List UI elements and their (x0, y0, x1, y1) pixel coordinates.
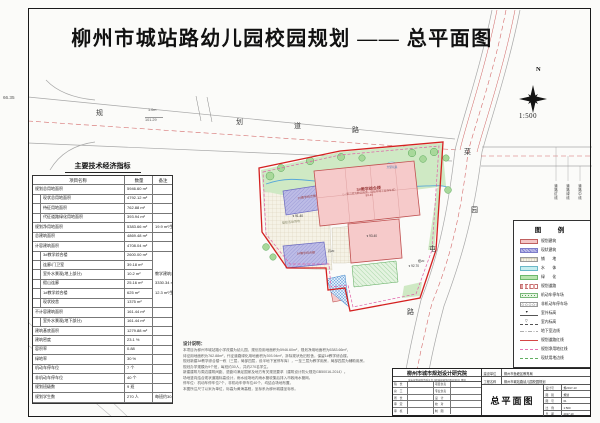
staff-grid: 院 长 项目负责 总 工 专业负责 所 长 设 计 (393, 382, 481, 415)
legend-swatch-icon (520, 293, 538, 298)
staff-role: 审 核 (393, 408, 408, 415)
row-item-name: 室外水景观(地上部分) (33, 270, 125, 279)
legend-item: 非机动车停车场 (520, 300, 590, 309)
legend-item: 现状用地边线 (520, 354, 590, 363)
legend-swatch-icon (520, 338, 538, 343)
row-item-name: 总建筑面积 (33, 233, 125, 242)
row-quantity: 625 m² (125, 289, 153, 298)
row-item-name: 3#教学综合楼 (33, 252, 125, 261)
row-quantity: 1375 m² (125, 299, 153, 308)
staff-row: 总 工 专业负责 (393, 388, 481, 395)
legend-swatch-icon (520, 239, 538, 244)
row-remark (153, 185, 172, 194)
legend-panel: 图 例 规划建筑 现状建筑 铺 地 水 体 (513, 220, 591, 368)
row-item-name: 假山连廊 (33, 280, 125, 289)
row-quantity: 4708.04 m² (125, 242, 153, 251)
indicator-table-title: 主要技术经济指标 (65, 161, 141, 173)
table-row: 规划净用地面积 5383.66 m² 19.9 m²/生 (33, 223, 172, 232)
row-item-name: 规划总用地面积 (33, 185, 125, 194)
tree-tag: 樟20 (418, 259, 424, 263)
meta-key: 比 例 (544, 404, 562, 409)
legend-item-label: 绿 化 (541, 275, 556, 280)
pool-label: 大型玩具 (386, 166, 398, 169)
project-row: 工程名称 柳州市城站路幼儿园校园规划 (482, 377, 590, 385)
row-item-name: 绿地率 (33, 355, 125, 364)
staff-signature (408, 401, 434, 408)
table-row: 室外水景观(地下部分) 161.44 m² (33, 318, 172, 327)
legend-swatch-icon (520, 284, 538, 289)
legend-item: 铺 地 (520, 255, 590, 264)
table-row: 1#教学综合楼 625 m² 12.3 m²/生 (33, 289, 172, 298)
header-item-name: 项目名称 (33, 176, 125, 185)
row-item-name: 代征道路绿化用地面积 (33, 214, 125, 223)
page-title: 柳州市城站路幼儿园校园规划 —— 总平面图 (58, 22, 506, 51)
staff-signature (451, 401, 481, 408)
row-remark (153, 355, 172, 364)
legend-item: 室外标高 (520, 309, 590, 318)
legend-swatch-icon (520, 311, 538, 316)
design-note-line: 本图所注尺寸以米为单位，标高为黄海高程，坐标系为柳州城建坐标系。 (183, 387, 427, 393)
staff-role: 专业负责 (434, 388, 451, 395)
legend-items: 规划建筑 现状建筑 铺 地 水 体 绿 化 (520, 237, 590, 364)
spot-elevation: 93.40 (366, 234, 377, 238)
row-remark (153, 308, 172, 317)
legend-item: 规划建筑 (520, 237, 590, 246)
meta-value: 1:500 (562, 404, 590, 409)
tree-tag: 丹20 (328, 249, 334, 253)
north-arrow-icon (519, 85, 547, 113)
staff-signature (408, 395, 434, 402)
meta-key: 图 号 (544, 398, 562, 403)
staff-row: 院 长 项目负责 (393, 382, 481, 389)
staff-signature (408, 388, 434, 395)
row-quantity: 1279.88 m² (125, 327, 153, 336)
meta-value: 01 (562, 398, 590, 403)
table-row: 规划学生数 270 人 每班约30人 (33, 393, 172, 402)
row-remark (153, 365, 172, 374)
institute-name: 柳州市城市规划设计研究院 (393, 369, 481, 377)
title-block: 柳州市城市规划设计研究院 城市规划编制资质证书 [建]城规编第(081036)号… (392, 368, 591, 416)
row-remark (153, 299, 172, 308)
row-quantity: 0.88 (125, 346, 153, 355)
table-row: 规划班级数 9 班 (33, 384, 172, 393)
label-road-greenline: 道路绿线 (565, 184, 568, 200)
legend-item-label: 室内标高 (541, 320, 556, 325)
legend-item-label: 铺 地 (541, 257, 556, 262)
owner-label: 建设单位 (482, 369, 502, 376)
staff-role: 总 工 (393, 388, 408, 395)
row-item-name: 规划班级数 (33, 384, 125, 393)
row-quantity: 30 % (125, 355, 153, 364)
staff-signature (451, 408, 481, 415)
row-remark: 19.9 m²/生 (153, 223, 172, 232)
meta-row: 日 期 2017.10 (544, 411, 590, 416)
drawing-title: 总平面图 (482, 385, 544, 416)
row-quantity: 161.44 m² (125, 308, 153, 317)
legend-swatch-icon (520, 302, 538, 307)
row-quantity: 393.94 m² (125, 214, 153, 223)
row-item-name: 现状总用地面积 (33, 195, 125, 204)
project-label: 工程名称 (482, 377, 502, 384)
legend-item: 机动车停车场 (520, 291, 590, 300)
row-quantity: 2600.00 m² (125, 252, 153, 261)
staff-signature (451, 395, 481, 402)
indicator-table: 主要技术经济指标 项目名称 数量 备注 规划总用地面积 5946.60 m² 现… (32, 161, 173, 404)
row-remark (153, 374, 172, 383)
row-quantity: 4792.12 m² (125, 195, 153, 204)
road-char: 路 (407, 309, 414, 316)
table-row: 不计容建筑面积 161.44 m² (33, 308, 172, 317)
indicator-header-row: 项目名称 数量 备注 (33, 176, 172, 185)
row-quantity: 4869.48 m² (125, 233, 153, 242)
table-row: 3#教学综合楼 2600.00 m² (33, 252, 172, 261)
dim-road-width: 1.0m (148, 108, 156, 112)
staff-role: 设 计 (434, 395, 451, 402)
row-remark (153, 346, 172, 355)
row-quantity: 10.2 m² (125, 270, 153, 279)
staff-role: 项目负责 (434, 382, 451, 389)
spot-elevation: 91.40 (292, 214, 303, 218)
table-row: 现状总用地面积 4792.12 m² (33, 195, 172, 204)
row-quantity: 40 个 (125, 374, 153, 383)
label-road-centerline: 道路中线 (577, 184, 580, 200)
row-remark (153, 384, 172, 393)
legend-item-label: 地下室边线 (541, 329, 560, 334)
row-item-name: 计容建筑面积 (33, 242, 125, 251)
legend-item-label: 室外标高 (541, 311, 556, 316)
scale-label: 1:500 (519, 113, 537, 120)
row-quantity: 5383.66 m² (125, 223, 153, 232)
row-remark: 每班约30人 (153, 393, 172, 402)
row-quantity: 25.16 m² (125, 280, 153, 289)
drawing-meta: 设计号 规2017-13 图 别 规划 图 号 01 比 例 (544, 385, 590, 416)
row-item-name: 不计容建筑面积 (33, 308, 125, 317)
legend-swatch-icon (520, 329, 538, 334)
staff-row: 审 定 校 对 (393, 401, 481, 408)
row-remark (153, 318, 172, 327)
table-row: 规划总用地面积 5946.60 m² (33, 185, 172, 194)
legend-swatch-icon (520, 248, 538, 253)
legend-item: 规划道路红线 (520, 336, 590, 345)
legend-swatch-icon (520, 257, 538, 262)
legend-item: 地下室边线 (520, 327, 590, 336)
row-item-name: 规划净用地面积 (33, 223, 125, 232)
project-value: 柳州市城站路幼儿园校园规划 (502, 377, 590, 384)
legend-item-label: 规划道路红线 (541, 338, 564, 343)
row-item-name: 连廊/门卫室 (33, 261, 125, 270)
design-notes-heading: 设计说明： (183, 341, 427, 347)
staff-row: 所 长 设 计 (393, 395, 481, 402)
legend-swatch-icon (520, 356, 538, 361)
indicator-rows: 规划总用地面积 5946.60 m² 现状总用地面积 4792.12 m² 待征… (33, 185, 172, 402)
row-remark (153, 261, 172, 270)
table-row: 建筑密度 23.1 % (33, 336, 172, 345)
road-char: 规 (96, 110, 103, 117)
staff-signature (451, 388, 481, 395)
row-quantity: 270 人 (125, 393, 153, 402)
row-quantity: 5946.60 m² (125, 185, 153, 194)
table-row: 现状校舍 1375 m² (33, 299, 172, 308)
row-remark (153, 252, 172, 261)
legend-item-label: 现状建筑 (541, 248, 556, 253)
legend-item-label: 机动车停车场 (541, 293, 564, 298)
header-quantity: 数量 (125, 176, 153, 185)
row-quantity: 7 个 (125, 365, 153, 374)
row-remark (153, 327, 172, 336)
staff-row: 审 核 制 图 (393, 408, 481, 415)
row-remark: 教学建筑总面积 (153, 270, 172, 279)
row-quantity: 23.1 % (125, 336, 153, 345)
legend-title: 图 例 (520, 224, 584, 234)
table-row: 室外水景观(地上部分) 10.2 m² 教学建筑总面积 (33, 270, 172, 279)
staff-signature (451, 382, 481, 389)
owner-value: 柳州市鱼峰区教育局 (502, 369, 590, 376)
legend-item-label: 非机动车停车场 (541, 302, 568, 307)
legend-swatch-icon (520, 347, 538, 352)
staff-signature (408, 382, 434, 389)
row-item-name: 容积率 (33, 346, 125, 355)
road-top-right (481, 147, 592, 181)
row-quantity: 9 班 (125, 384, 153, 393)
meta-value: 规划 (562, 391, 590, 396)
table-row: 连廊/门卫室 39.18 m² (33, 261, 172, 270)
row-item-name: 建筑基底面积 (33, 327, 125, 336)
road-char: 道 (294, 123, 301, 130)
row-remark (153, 195, 172, 204)
design-notes-lines: 本项目为柳州市城站路小学改建为幼儿园，规划总用地面积为5946.60m²，规划净… (183, 348, 427, 393)
legend-item: 规划道路 (520, 282, 590, 291)
row-item-name: 非机动车停车位 (33, 374, 125, 383)
road-char: 划 (236, 119, 243, 126)
row-item-name: 1#教学综合楼 (33, 289, 125, 298)
legend-item-label: 规划建筑 (541, 239, 556, 244)
road-char: 园 (471, 207, 478, 214)
staff-signature (408, 408, 434, 415)
spot-elevation: 92.70 (408, 264, 419, 268)
table-row: 代征道路绿化用地面积 393.94 m² (33, 214, 172, 223)
row-remark (153, 233, 172, 242)
row-item-name: 建筑密度 (33, 336, 125, 345)
dim-left: 66.35 (3, 95, 15, 100)
row-item-name: 规划学生数 (33, 393, 125, 402)
table-row: 容积率 0.88 (33, 346, 172, 355)
north-label: N (536, 66, 541, 73)
row-remark (153, 242, 172, 251)
table-row: 非机动车停车位 40 个 (33, 374, 172, 383)
meta-key: 日 期 (544, 411, 562, 416)
legend-swatch-icon (520, 266, 538, 271)
road-char: 路 (352, 127, 359, 134)
meta-key: 图 别 (544, 391, 562, 396)
row-item-name: 机动车停车位 (33, 365, 125, 374)
table-row: 待征用地面积 762.88 m² (33, 204, 172, 213)
legend-item-label: 规划净用地红线 (541, 347, 568, 352)
legend-item: 水 体 (520, 264, 590, 273)
green-pocket-southeast (402, 282, 422, 298)
legend-item: 绿 化 (520, 273, 590, 282)
staff-role: 校 对 (434, 401, 451, 408)
road-char: 屯 (429, 246, 436, 253)
staff-role: 制 图 (434, 408, 451, 415)
car-parking (352, 261, 398, 287)
row-item-name: 室外水景观(地下部分) (33, 318, 125, 327)
table-row: 机动车停车位 7 个 (33, 365, 172, 374)
meta-key: 设计号 (544, 385, 562, 390)
row-item-name: 待征用地面积 (33, 204, 125, 213)
row-remark (153, 336, 172, 345)
drawing-sheet: { "sheet": { "title": "柳州市城站路幼儿园校园规划 —— … (0, 0, 600, 423)
owner-row: 建设单位 柳州市鱼峰区教育局 (482, 369, 590, 377)
row-quantity: 762.88 m² (125, 204, 153, 213)
staff-role: 审 定 (393, 401, 408, 408)
legend-swatch-icon (520, 275, 538, 280)
row-remark: 3330.34 m² (153, 280, 172, 289)
legend-item: 规划净用地红线 (520, 345, 590, 354)
table-row: 计容建筑面积 4708.04 m² (33, 242, 172, 251)
legend-item-label: 水 体 (541, 266, 556, 271)
table-row: 假山连廊 25.16 m² 3330.34 m² (33, 280, 172, 289)
row-quantity: 39.18 m² (125, 261, 153, 270)
row-item-name: 现状校舍 (33, 299, 125, 308)
row-quantity: 161.44 m² (125, 318, 153, 327)
row-remark (153, 204, 172, 213)
staff-role: 院 长 (393, 382, 408, 389)
building-3-planned-wing (348, 219, 402, 263)
legend-swatch-icon (520, 320, 538, 325)
header-remark: 备注 (153, 176, 172, 185)
table-row: 总建筑面积 4869.48 m² (33, 233, 172, 242)
legend-item-label: 现状用地边线 (541, 356, 564, 361)
meta-value: 规2017-13 (562, 385, 590, 390)
table-row: 建筑基底面积 1279.88 m² (33, 327, 172, 336)
row-remark (153, 214, 172, 223)
dim-road-length: 101.29 (145, 118, 157, 122)
meta-value: 2017.10 (562, 411, 590, 416)
road-char: 菜 (464, 149, 471, 156)
title-block-left: 柳州市城市规划设计研究院 城市规划编制资质证书 [建]城规编第(081036)号… (393, 369, 482, 415)
legend-item: 现状建筑 (520, 246, 590, 255)
design-notes: 设计说明： 本项目为柳州市城站路小学改建为幼儿园，规划总用地面积为5946.60… (183, 341, 427, 393)
row-remark: 12.3 m²/生 (153, 289, 172, 298)
title-block-right: 建设单位 柳州市鱼峰区教育局 工程名称 柳州市城站路幼儿园校园规划 总平面图 设… (482, 369, 590, 415)
table-row: 绿地率 30 % (33, 355, 172, 364)
staff-role: 所 长 (393, 395, 408, 402)
legend-item-label: 规划道路 (541, 284, 556, 289)
legend-item: 室内标高 (520, 318, 590, 327)
label-road-redline: 道路红线 (553, 184, 556, 200)
